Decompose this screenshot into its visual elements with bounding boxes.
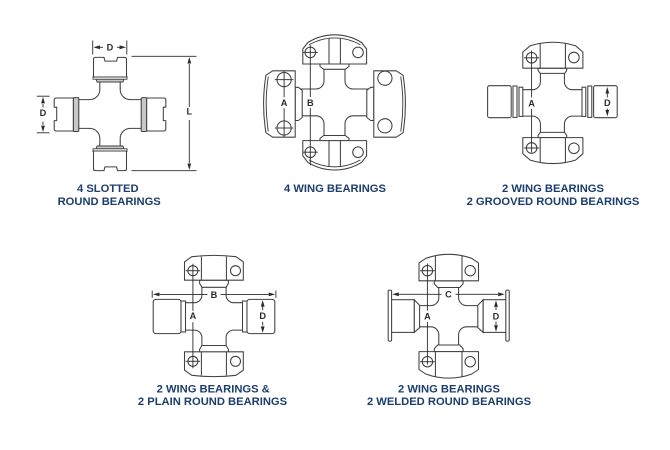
svg-text:A: A bbox=[281, 98, 288, 108]
svg-text:A: A bbox=[528, 98, 535, 108]
svg-text:4 WING BEARINGS: 4 WING BEARINGS bbox=[284, 183, 386, 195]
svg-text:D: D bbox=[107, 43, 114, 53]
svg-text:2 WELDED ROUND BEARINGS: 2 WELDED ROUND BEARINGS bbox=[367, 396, 532, 408]
svg-text:2 WING BEARINGS: 2 WING BEARINGS bbox=[502, 183, 604, 195]
svg-text:D: D bbox=[493, 311, 500, 321]
svg-text:A: A bbox=[424, 312, 431, 322]
svg-text:D: D bbox=[604, 98, 611, 108]
svg-text:L: L bbox=[186, 106, 192, 116]
svg-text:B: B bbox=[211, 290, 218, 300]
svg-text:B: B bbox=[307, 98, 314, 108]
svg-text:D: D bbox=[40, 108, 47, 118]
svg-text:2 PLAIN ROUND BEARINGS: 2 PLAIN ROUND BEARINGS bbox=[138, 396, 288, 408]
svg-text:2 WING BEARINGS: 2 WING BEARINGS bbox=[398, 383, 500, 395]
svg-text:D: D bbox=[259, 311, 266, 321]
svg-text:4 SLOTTED: 4 SLOTTED bbox=[77, 183, 139, 195]
svg-text:2 GROOVED ROUND BEARINGS: 2 GROOVED ROUND BEARINGS bbox=[467, 196, 640, 208]
svg-text:C: C bbox=[445, 290, 452, 300]
svg-text:A: A bbox=[190, 311, 197, 321]
svg-text:2 WING BEARINGS &: 2 WING BEARINGS & bbox=[157, 383, 270, 395]
svg-text:ROUND BEARINGS: ROUND BEARINGS bbox=[58, 196, 162, 208]
